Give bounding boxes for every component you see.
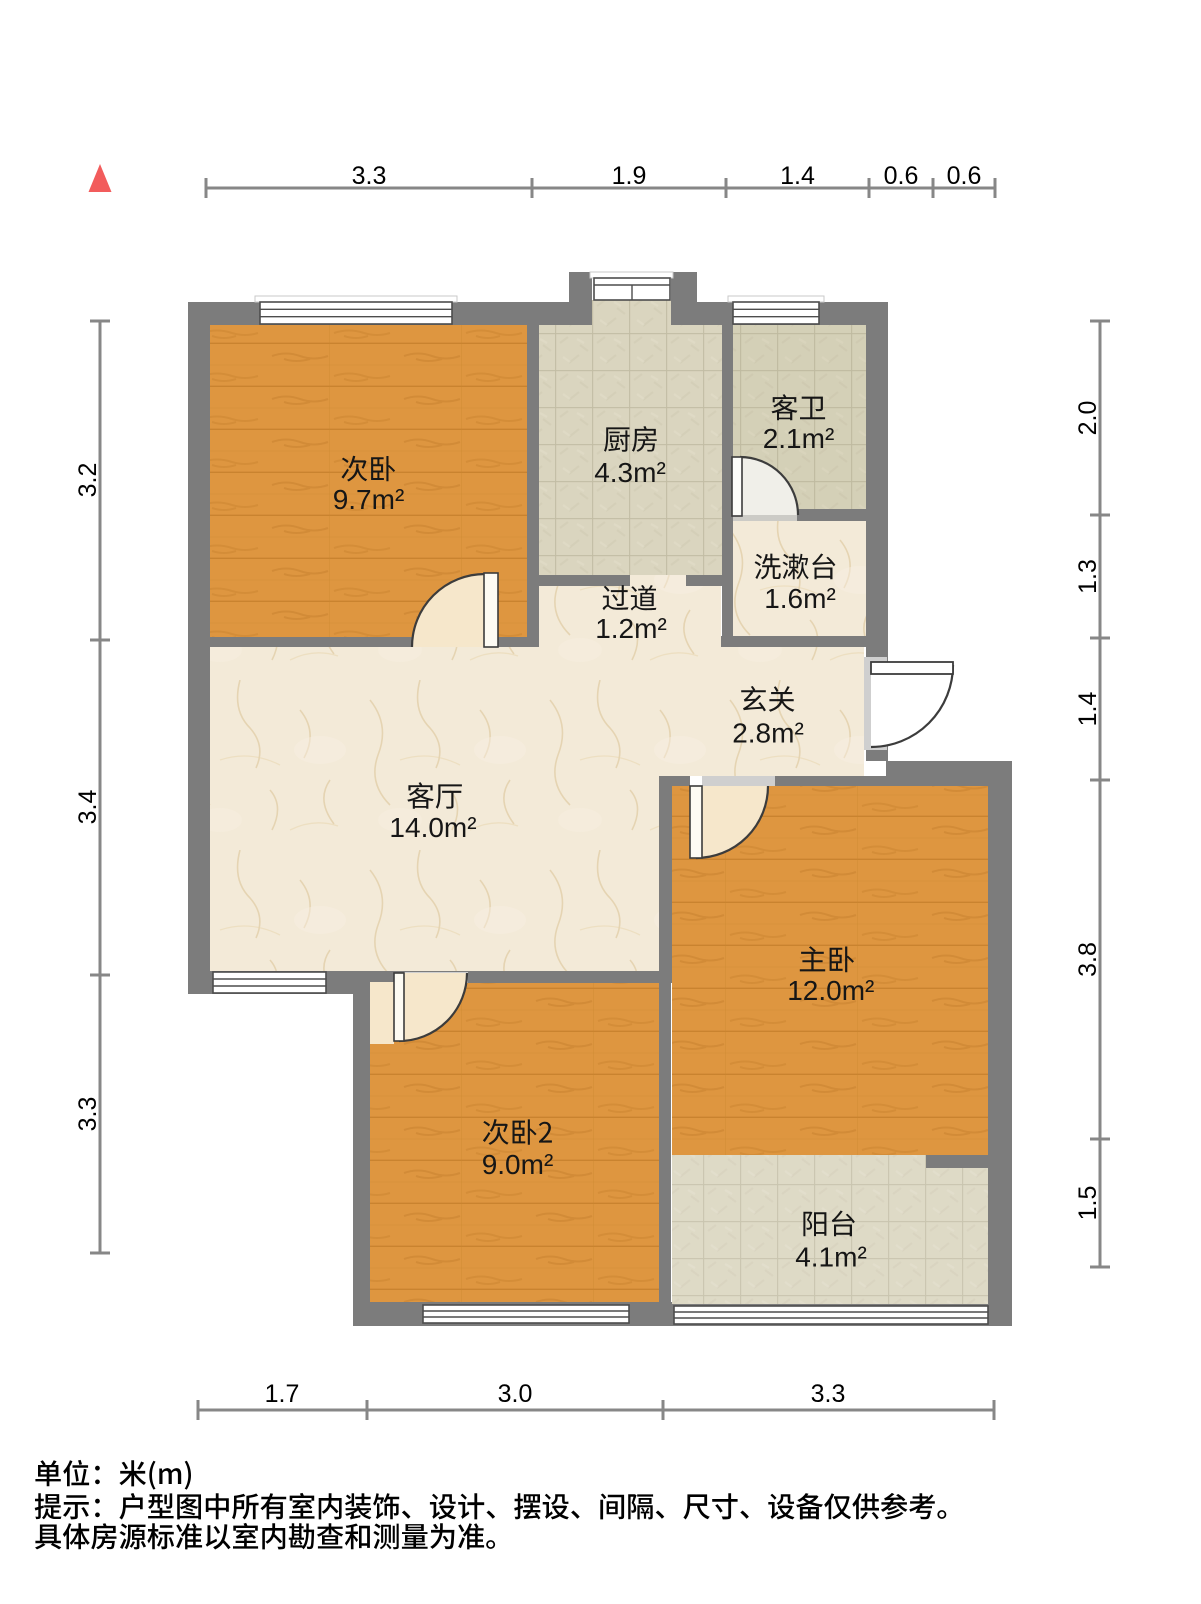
- svg-text:1.3: 1.3: [1074, 559, 1102, 594]
- svg-text:1.7: 1.7: [265, 1380, 300, 1408]
- svg-text:3.4: 3.4: [74, 790, 102, 825]
- svg-text:3.8: 3.8: [1074, 942, 1102, 977]
- svg-text:1.6m²: 1.6m²: [764, 583, 836, 614]
- svg-text:14.0m²: 14.0m²: [389, 812, 476, 843]
- svg-text:1.4: 1.4: [780, 162, 815, 190]
- svg-text:3.3: 3.3: [74, 1097, 102, 1132]
- svg-text:2.0: 2.0: [1074, 401, 1102, 436]
- svg-text:9.0m²: 9.0m²: [482, 1149, 554, 1180]
- svg-text:9.7m²: 9.7m²: [333, 484, 405, 515]
- svg-text:3.0: 3.0: [498, 1380, 533, 1408]
- svg-text:3.3: 3.3: [811, 1380, 846, 1408]
- svg-text:2.1m²: 2.1m²: [763, 423, 835, 454]
- svg-text:4.1m²: 4.1m²: [795, 1242, 867, 1273]
- svg-text:0.6: 0.6: [947, 162, 982, 190]
- svg-text:12.0m²: 12.0m²: [787, 975, 874, 1006]
- svg-text:0.6: 0.6: [884, 162, 919, 190]
- svg-text:3.3: 3.3: [352, 162, 387, 190]
- svg-text:1.5: 1.5: [1074, 1186, 1102, 1221]
- svg-text:1.2m²: 1.2m²: [595, 613, 667, 644]
- svg-text:1.4: 1.4: [1074, 692, 1102, 727]
- svg-text:3.2: 3.2: [74, 463, 102, 498]
- svg-text:2.8m²: 2.8m²: [732, 718, 804, 749]
- svg-text:4.3m²: 4.3m²: [594, 457, 666, 488]
- svg-text:1.9: 1.9: [612, 162, 647, 190]
